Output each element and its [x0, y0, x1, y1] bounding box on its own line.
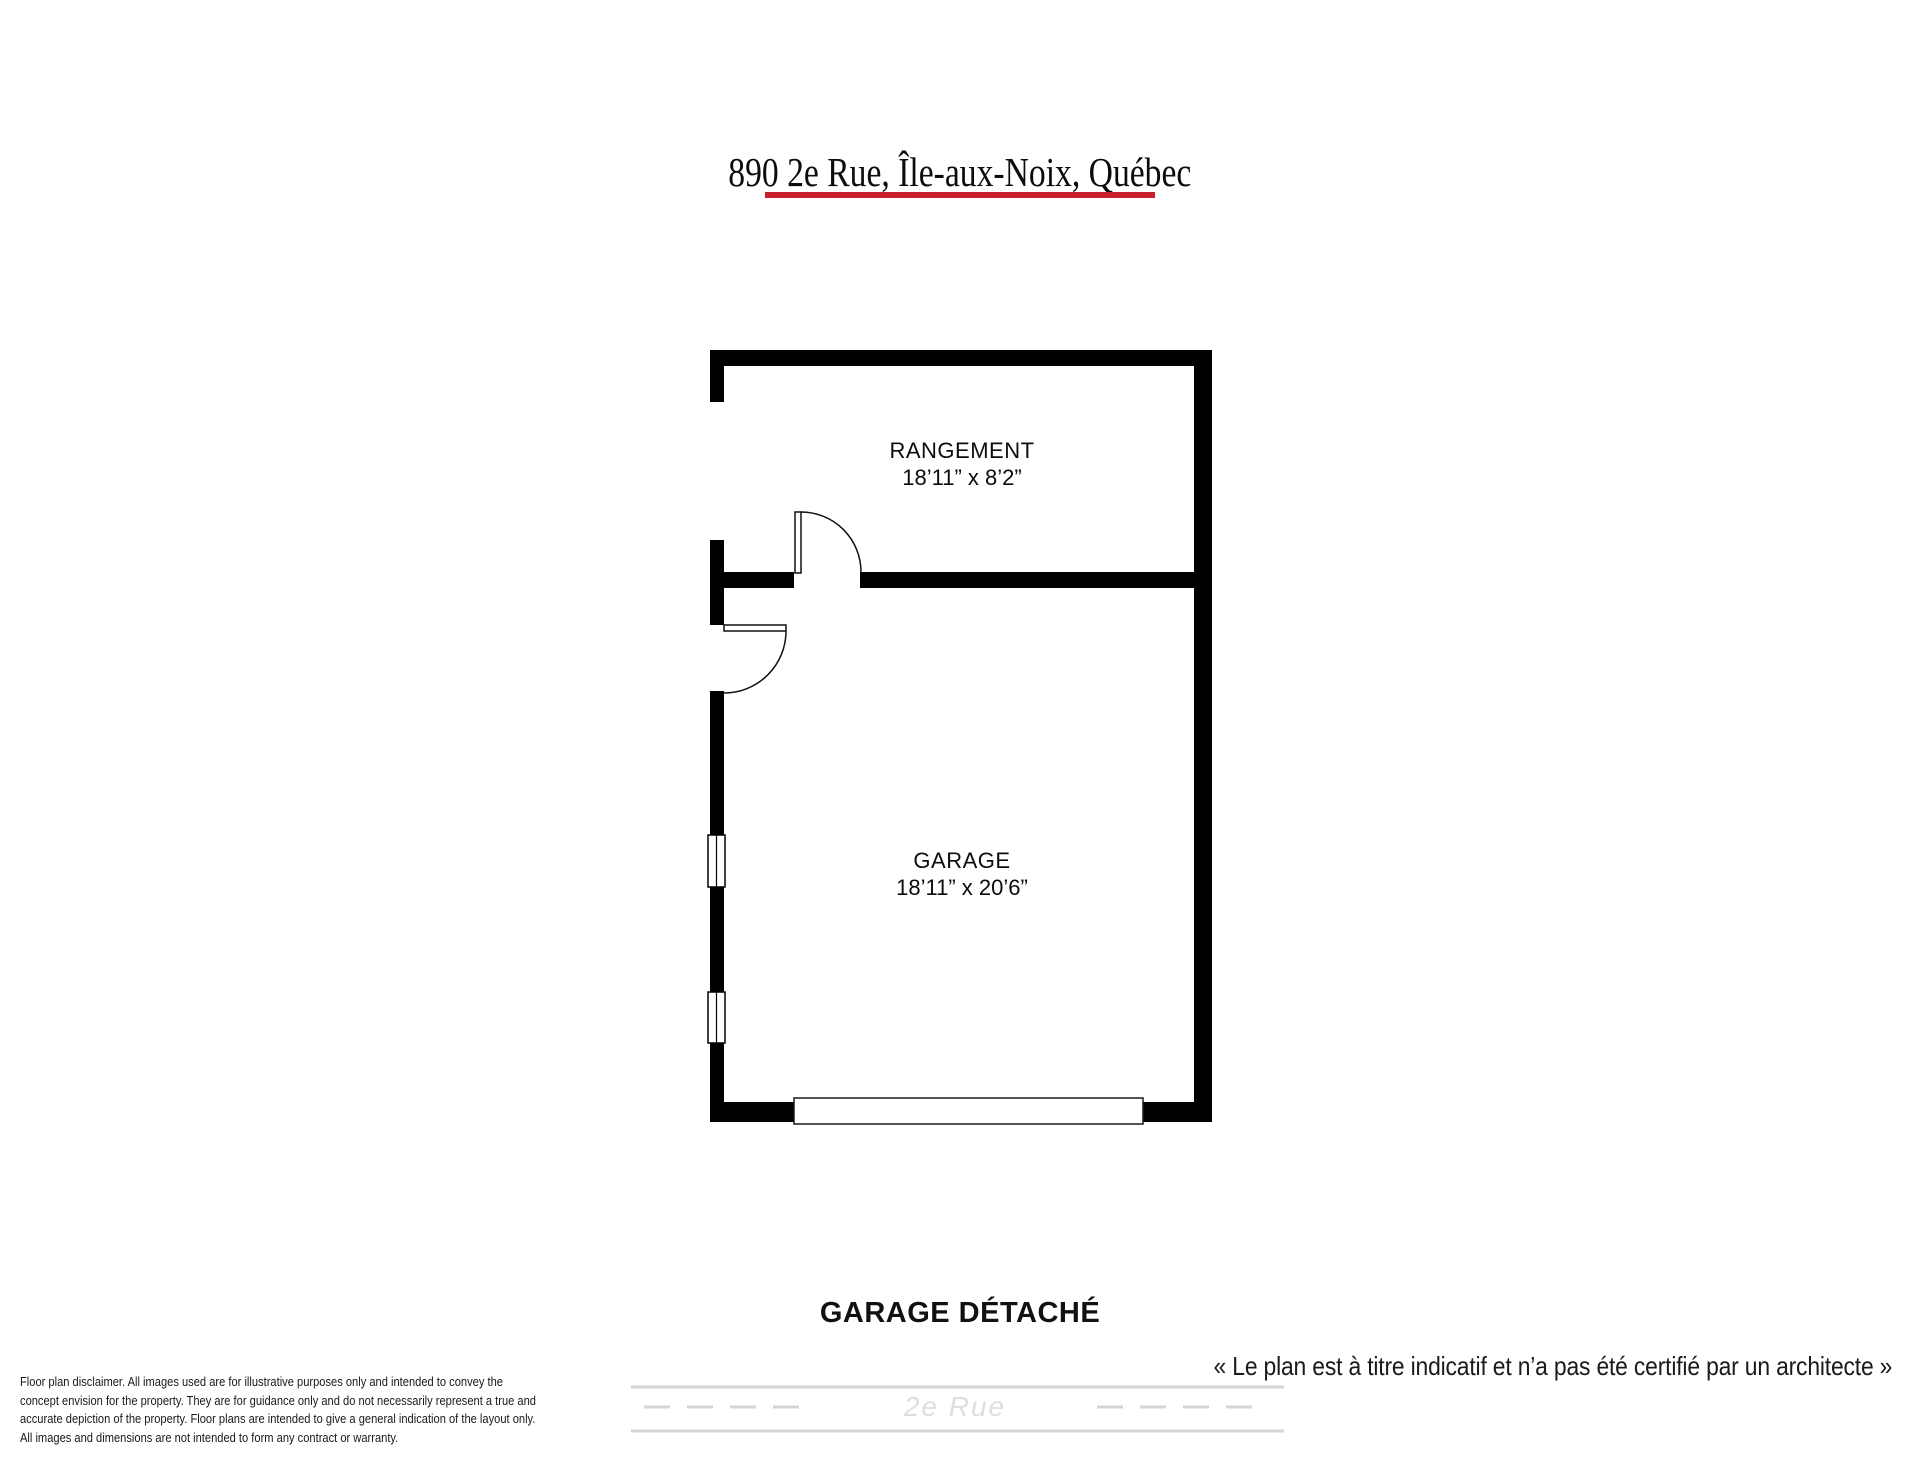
- wall-top: [710, 350, 1212, 366]
- disclaimer-line: accurate depiction of the property. Floo…: [20, 1410, 536, 1429]
- interior-wall-left: [724, 572, 794, 588]
- wall-left-seg2: [710, 540, 724, 625]
- interior-door: [795, 512, 861, 573]
- interior-wall: [724, 572, 1194, 588]
- floor-plan-drawing: [0, 0, 1920, 1483]
- interior-door-leaf: [795, 512, 801, 573]
- room-label-garage: GARAGE 18’11” x 20’6”: [724, 847, 1200, 901]
- wall-left-seg5: [710, 1043, 724, 1122]
- wall-left-seg3: [710, 691, 724, 835]
- wall-bottom-right: [1143, 1102, 1212, 1122]
- disclaimer-line: concept envision for the property. They …: [20, 1392, 536, 1411]
- room-label-rangement: RANGEMENT 18’11” x 8’2”: [724, 437, 1200, 491]
- window-icon: [708, 835, 725, 887]
- wall-left-seg1: [710, 350, 724, 402]
- room-dimensions: 18’11” x 20’6”: [724, 874, 1200, 901]
- room-dimensions: 18’11” x 8’2”: [724, 464, 1200, 491]
- floor-plan-page: 890 2e Rue, Île-aux-Noix, Québec: [0, 0, 1920, 1483]
- wall-left-seg4: [710, 887, 724, 992]
- disclaimer-line: All images and dimensions are not intend…: [20, 1429, 536, 1448]
- disclaimer-text: Floor plan disclaimer. All images used a…: [20, 1373, 536, 1447]
- exterior-door-leaf: [724, 625, 786, 631]
- interior-door-arc: [801, 512, 861, 572]
- exterior-door-arc: [724, 631, 786, 693]
- garage-door: [794, 1098, 1143, 1124]
- architect-note: « Le plan est à titre indicatif et n’a p…: [1213, 1351, 1892, 1382]
- plan-caption: GARAGE DÉTACHÉ: [0, 1297, 1920, 1330]
- interior-wall-right: [860, 572, 1194, 588]
- room-name: GARAGE: [724, 847, 1200, 874]
- room-name: RANGEMENT: [724, 437, 1200, 464]
- disclaimer-line: Floor plan disclaimer. All images used a…: [20, 1373, 536, 1392]
- exterior-door: [724, 625, 786, 693]
- street-name-label: 2e Rue: [860, 1391, 1050, 1423]
- window-icon: [708, 992, 725, 1043]
